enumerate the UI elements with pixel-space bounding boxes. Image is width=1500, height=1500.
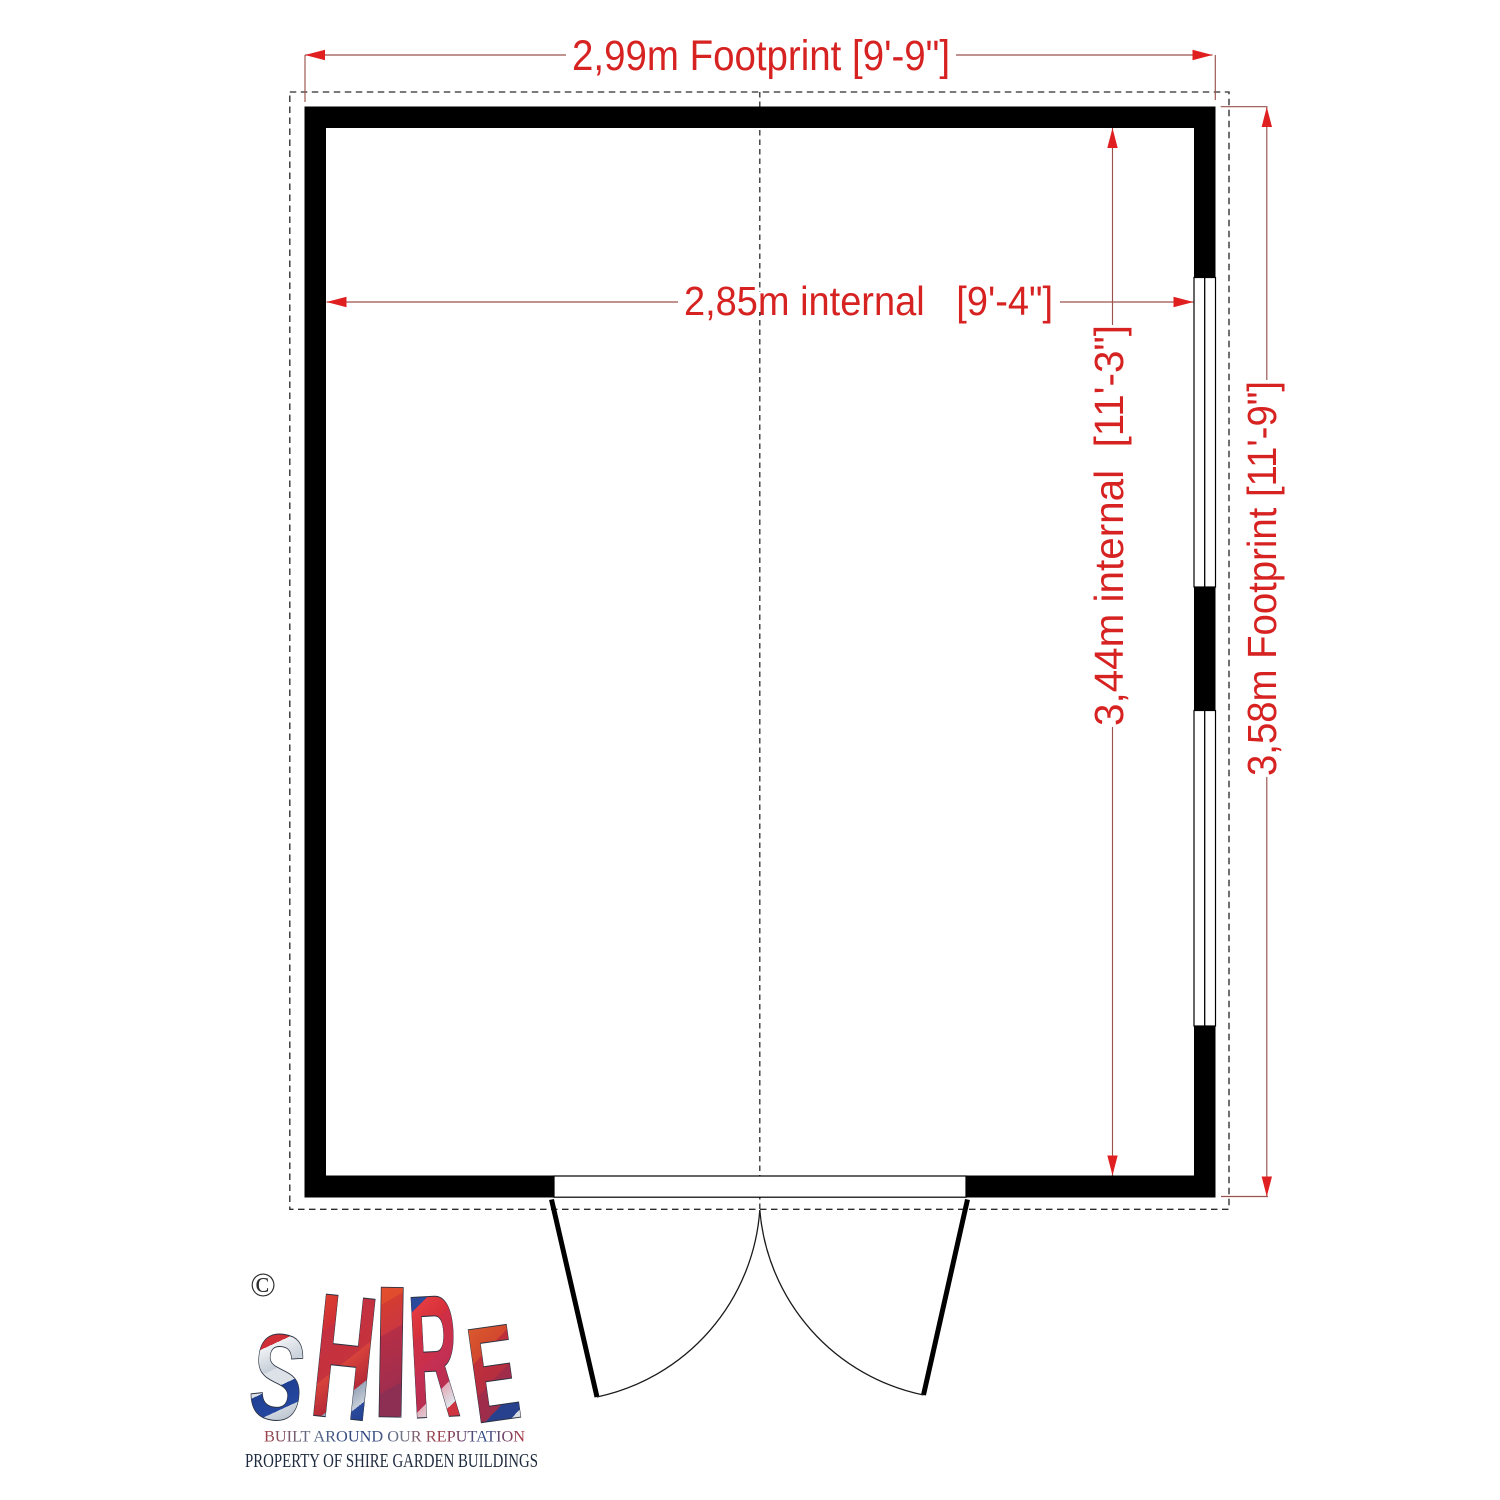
- svg-text:PROPERTY OF SHIRE GARDEN BUILD: PROPERTY OF SHIRE GARDEN BUILDINGS: [245, 1451, 538, 1472]
- svg-text:2,99m Footprint [9'-9"]: 2,99m Footprint [9'-9"]: [572, 32, 950, 80]
- svg-text:3,44m internal [11'-3"]: 3,44m internal [11'-3"]: [1086, 325, 1132, 726]
- svg-text:BUILT AROUND OUR REPUTATION: BUILT AROUND OUR REPUTATION: [264, 1429, 525, 1446]
- svg-text:3,58m Footprint [11'-9"]: 3,58m Footprint [11'-9"]: [1239, 381, 1285, 776]
- svg-text:©: ©: [250, 1267, 276, 1304]
- svg-text:2,85m internal [9'-4"]: 2,85m internal [9'-4"]: [684, 278, 1053, 324]
- svg-text:R: R: [404, 1259, 463, 1457]
